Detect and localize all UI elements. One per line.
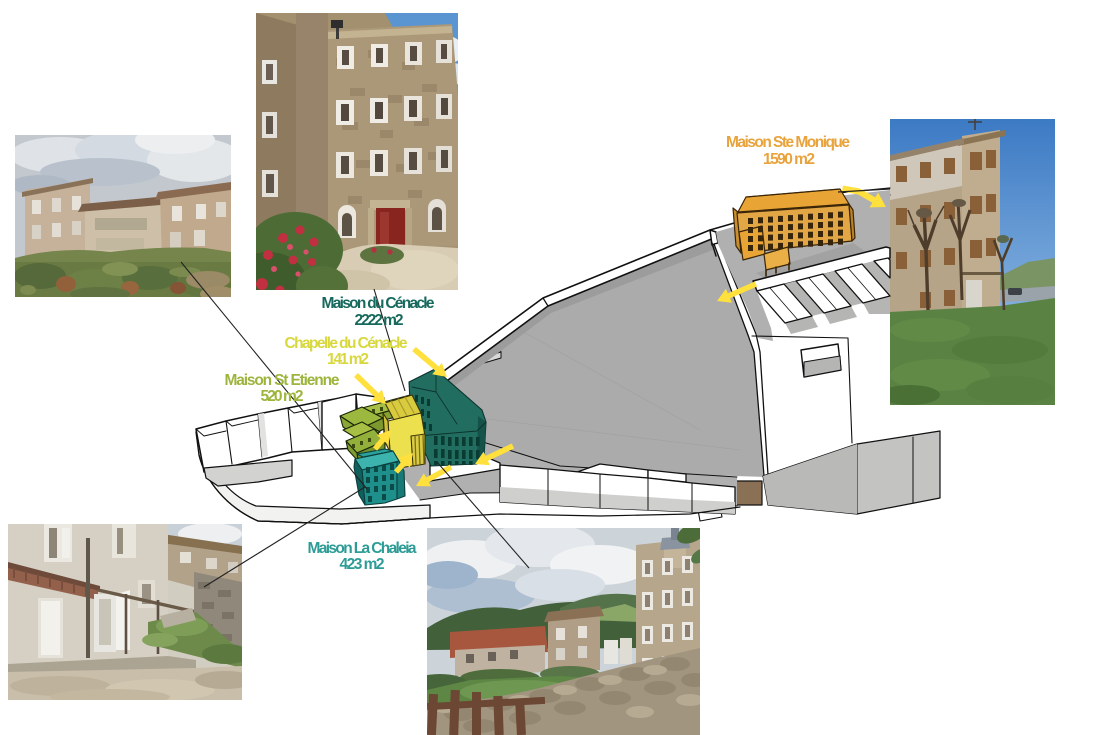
svg-text:Maison Ste Monique: Maison Ste Monique xyxy=(726,134,850,151)
svg-text:1590 m2: 1590 m2 xyxy=(763,151,815,168)
svg-text:Maison La Chaleia: Maison La Chaleia xyxy=(308,540,417,557)
svg-text:Maison St Etienne: Maison St Etienne xyxy=(225,372,340,389)
svg-text:141 m2: 141 m2 xyxy=(327,351,369,368)
svg-text:2222 m2: 2222 m2 xyxy=(355,312,404,329)
svg-text:423 m2: 423 m2 xyxy=(340,556,385,573)
svg-text:520 m2: 520 m2 xyxy=(261,388,304,405)
svg-text:Chapelle du Cénacle: Chapelle du Cénacle xyxy=(285,335,408,352)
svg-text:Maison du Cénacle: Maison du Cénacle xyxy=(322,295,435,312)
